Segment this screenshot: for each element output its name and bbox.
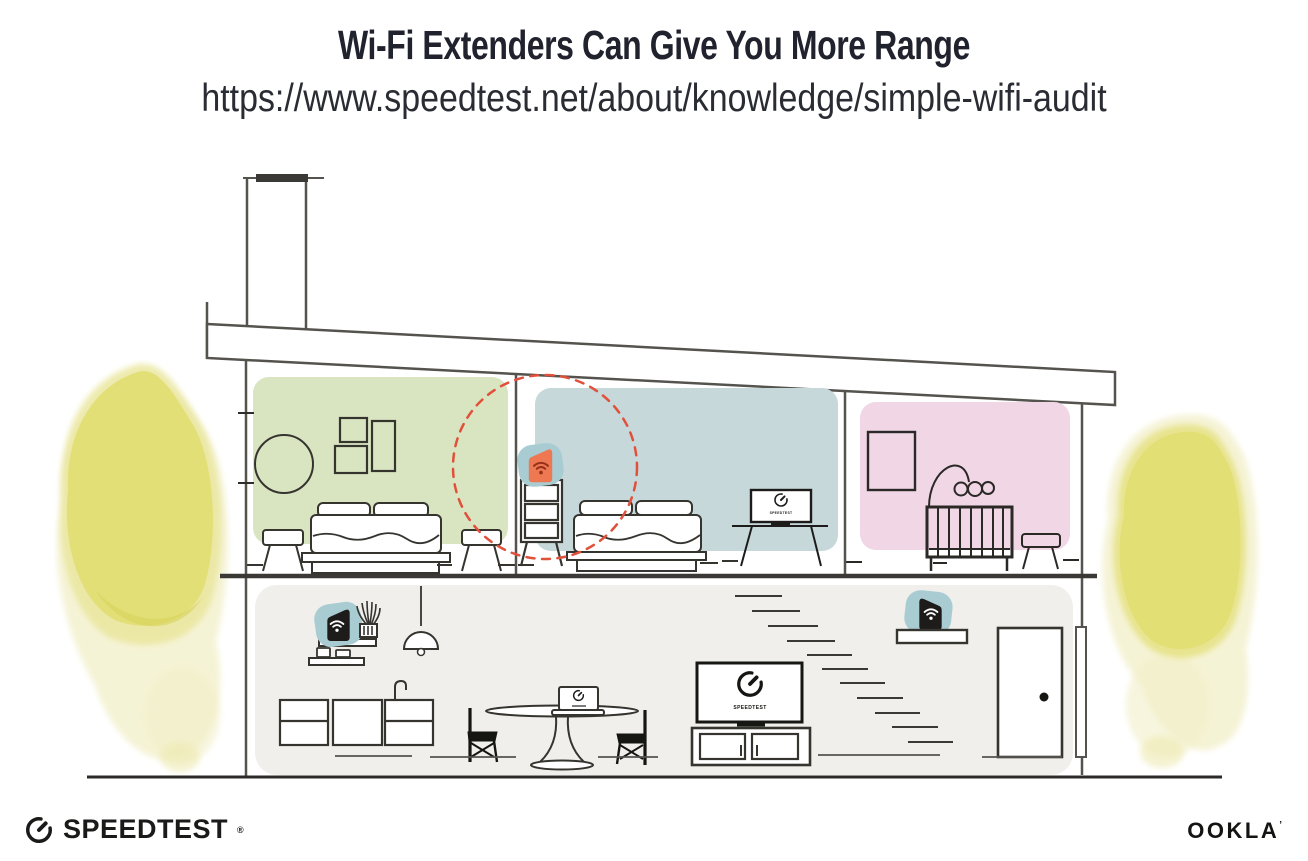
bed: [567, 501, 706, 571]
living-room-tv: SPEEDTEST: [697, 663, 802, 727]
downspout: [1076, 627, 1086, 757]
bed: [302, 503, 450, 573]
nightstand-left: [263, 530, 303, 571]
door-knob: [1040, 693, 1049, 702]
nursery-wall-fill: [860, 402, 1070, 550]
watercolor-tree-right: [1102, 415, 1257, 768]
floor-dashes: [846, 560, 1079, 563]
chimney: [243, 174, 324, 330]
infographic-canvas: Wi-Fi Extenders Can Give You More Range …: [0, 0, 1308, 861]
front-door: [998, 628, 1062, 757]
laptop: [552, 687, 604, 715]
wifi-extender-on-dresser: [516, 441, 566, 488]
stair-shelf: [897, 630, 967, 643]
nightstand-right: [462, 530, 501, 571]
watercolor-tree-left: [57, 364, 228, 772]
tv-label: SPEEDTEST: [770, 511, 793, 515]
media-console: [692, 728, 810, 765]
house-illustration: SPEEDTEST: [0, 0, 1308, 861]
dresser: [521, 480, 562, 566]
tv-label: SPEEDTEST: [733, 705, 766, 711]
